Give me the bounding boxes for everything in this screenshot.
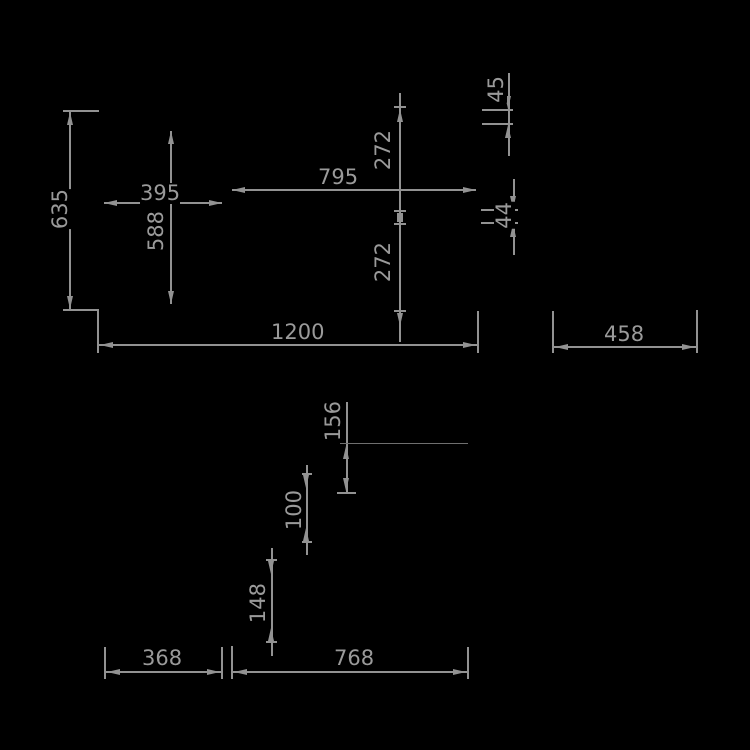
arrowhead <box>397 313 403 326</box>
dimension-label: 1200 <box>271 322 324 343</box>
extension-tick <box>394 310 406 312</box>
dimension-label: 148 <box>248 583 269 623</box>
dimension-line <box>99 344 477 346</box>
arrowhead <box>107 669 120 675</box>
extension-tick <box>97 310 99 353</box>
dimension-line <box>508 73 510 156</box>
arrowhead <box>232 187 245 193</box>
extension-tick <box>477 311 479 353</box>
arrowhead <box>555 344 568 350</box>
dimension-label: 395 <box>140 183 180 204</box>
arrowhead <box>168 131 174 144</box>
dimension-label: 768 <box>334 648 374 669</box>
extension-tick <box>394 210 406 212</box>
arrowhead <box>682 344 695 350</box>
arrowhead <box>234 669 247 675</box>
arrowhead <box>463 342 476 348</box>
dimension-label: 795 <box>318 167 358 188</box>
reference-line <box>340 443 468 444</box>
arrowhead <box>268 628 274 641</box>
extension-tick <box>104 647 106 679</box>
extension-tick <box>467 647 469 679</box>
extension-tick <box>63 309 99 311</box>
extension-tick <box>221 647 223 679</box>
arrowhead <box>67 112 73 125</box>
extension-tick <box>266 641 277 643</box>
extension-tick <box>231 646 233 679</box>
dimension-label: 635 <box>50 189 71 229</box>
dimension-label: 156 <box>323 401 344 441</box>
arrowhead <box>100 342 113 348</box>
dimension-label: 100 <box>284 490 305 530</box>
arrowhead <box>343 478 349 491</box>
extension-tick <box>394 106 406 108</box>
dimension-line <box>106 671 221 673</box>
arrowhead <box>209 200 222 206</box>
dimension-line <box>170 131 172 304</box>
extension-tick <box>482 109 513 111</box>
arrowhead <box>397 109 403 122</box>
dimension-label: 588 <box>146 211 167 251</box>
extension-tick <box>394 223 406 225</box>
dimension-label: 44 <box>494 202 515 229</box>
arrowhead <box>453 669 466 675</box>
dimension-drawing-canvas: 635 395 588 795 272 272 45 <box>0 0 750 750</box>
arrowhead <box>463 187 476 193</box>
arrowhead <box>505 125 511 138</box>
dimension-line <box>233 671 467 673</box>
arrowhead-pair <box>397 213 403 222</box>
arrowhead <box>67 296 73 309</box>
dimension-line <box>232 189 476 191</box>
dimension-label: 45 <box>486 76 507 103</box>
extension-tick <box>696 310 698 353</box>
arrowhead <box>303 475 309 488</box>
dimension-label: 272 <box>373 242 394 282</box>
arrowhead <box>343 446 349 459</box>
arrowhead <box>104 200 117 206</box>
dimension-label: 458 <box>604 324 644 345</box>
extension-tick <box>302 541 312 543</box>
arrowhead <box>268 561 274 574</box>
dimension-line <box>554 346 696 348</box>
dimension-label: 368 <box>142 648 182 669</box>
dimension-label: 272 <box>373 130 394 170</box>
arrowhead <box>168 291 174 304</box>
arrowhead <box>207 669 220 675</box>
extension-tick <box>337 492 356 494</box>
